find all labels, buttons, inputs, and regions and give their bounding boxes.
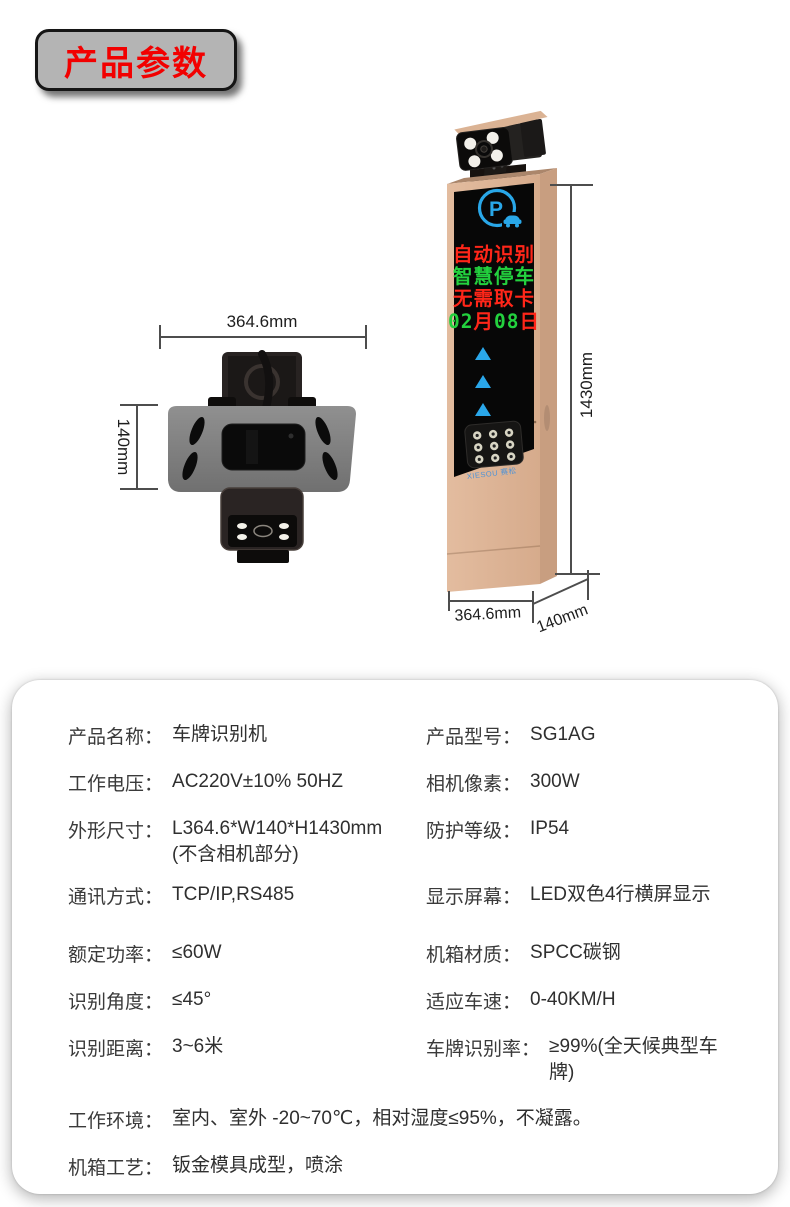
led-line-4: 02月08日 (448, 310, 540, 333)
spec-item-vehicle-speed: 适应车速： 0-40KM/H (426, 987, 742, 1014)
spec-item-rated-power: 额定功率： ≤60W (68, 940, 426, 967)
device-front-view-figure: P 自动识别 智慧停车 无需取卡 02月08日 (430, 108, 610, 638)
device-lower-housing (221, 488, 303, 563)
spec-label: 车牌识别率： (426, 1034, 540, 1061)
led-date-segment: 02 (448, 310, 473, 333)
spec-row: 产品名称： 车牌识别机 产品型号： SG1AG (68, 722, 742, 749)
spec-label: 机箱材质： (426, 940, 521, 967)
spec-label: 工作环境： (68, 1106, 163, 1133)
height-dimension: 1430mm (550, 185, 600, 600)
spec-label: 额定功率： (68, 940, 163, 967)
spec-item-dimensions: 外形尺寸： L364.6*W140*H1430mm(不含相机部分) (68, 816, 426, 868)
spec-value: AC220V±10% 50HZ (172, 769, 343, 795)
spec-item-voltage: 工作电压： AC220V±10% 50HZ (68, 769, 426, 796)
indicator-light (279, 523, 289, 529)
spec-value: SPCC碳钢 (530, 940, 621, 966)
spec-item-display-screen: 显示屏幕： LED双色4行横屏显示 (426, 882, 742, 909)
depth-dimension: 140mm (533, 579, 590, 636)
spec-value: ≤60W (172, 940, 222, 966)
spec-label: 工作电压： (68, 769, 163, 796)
spec-value-line2: (不含相机部分) (172, 842, 382, 868)
spec-card: 产品名称： 车牌识别机 产品型号： SG1AG 工作电压： AC220V±10%… (12, 680, 778, 1194)
spec-item-communication: 通讯方式： TCP/IP,RS485 (68, 882, 426, 909)
spec-item-recognition-rate: 车牌识别率： ≥99%(全天候典型车牌) (426, 1034, 742, 1086)
spec-label: 机箱工艺： (68, 1153, 163, 1180)
device-visor (168, 406, 356, 492)
section-title: 产品参数 (64, 36, 208, 85)
product-parameters-page: 产品参数 364.6mm 140mm (0, 0, 790, 1207)
led-line-2: 智慧停车 (453, 265, 535, 288)
indicator-light (237, 523, 247, 529)
spec-row: 识别角度： ≤45° 适应车速： 0-40KM/H (68, 987, 742, 1014)
top-height-dimension-label: 140mm (114, 419, 133, 476)
spec-row: 通讯方式： TCP/IP,RS485 显示屏幕： LED双色4行横屏显示 (68, 882, 742, 909)
section-title-badge: 产品参数 (35, 29, 237, 91)
spec-label: 外形尺寸： (68, 816, 163, 843)
spec-value: LED双色4行横屏显示 (530, 882, 711, 908)
spec-item-cabinet-process: 机箱工艺： 钣金模具成型，喷涂 (68, 1153, 742, 1180)
spec-label: 防护等级： (426, 816, 521, 843)
indicator-light (279, 534, 289, 540)
spec-item-working-environment: 工作环境： 室内、室外 -20~70℃，相对湿度≤95%，不凝露。 (68, 1106, 742, 1133)
spec-label: 适应车速： (426, 987, 521, 1014)
spec-item-protection-rating: 防护等级： IP54 (426, 816, 742, 868)
spec-row: 机箱工艺： 钣金模具成型，喷涂 (68, 1153, 742, 1180)
led-date-segment: 月 (472, 310, 494, 333)
camera-window (222, 424, 305, 470)
spec-row: 工作环境： 室内、室外 -20~70℃，相对湿度≤95%，不凝露。 (68, 1106, 742, 1133)
spec-label: 相机像素： (426, 769, 521, 796)
spec-value: 300W (530, 769, 580, 795)
device-upper-housing (208, 352, 316, 412)
spec-item-cabinet-material: 机箱材质： SPCC碳钢 (426, 940, 742, 967)
side-speaker (544, 405, 550, 431)
led-date-segment: 08 (494, 310, 519, 333)
keypad (464, 421, 524, 469)
led-line-1: 自动识别 (453, 243, 535, 266)
spec-row: 外形尺寸： L364.6*W140*H1430mm(不含相机部分) 防护等级： … (68, 816, 742, 868)
spec-value: L364.6*W140*H1430mm(不含相机部分) (172, 816, 382, 868)
device-top-view-figure: 364.6mm 140mm (104, 300, 389, 585)
spec-row: 识别距离： 3~6米 车牌识别率： ≥99%(全天候典型车牌) (68, 1034, 742, 1086)
spec-value-line1: L364.6*W140*H1430mm (172, 818, 382, 839)
front-height-dimension-label: 1430mm (577, 352, 596, 418)
spec-label: 通讯方式： (68, 882, 163, 909)
spec-value: TCP/IP,RS485 (172, 882, 294, 908)
spec-value: 0-40KM/H (530, 987, 616, 1013)
front-width-dimension-label: 364.6mm (454, 604, 522, 624)
spec-value: IP54 (530, 816, 569, 842)
spec-row: 工作电压： AC220V±10% 50HZ 相机像素： 300W (68, 769, 742, 796)
spec-label: 识别角度： (68, 987, 163, 1014)
spec-value: ≥99%(全天候典型车牌) (549, 1034, 742, 1086)
spec-value: ≤45° (172, 987, 211, 1013)
spec-value: SG1AG (530, 722, 595, 748)
spec-label: 识别距离： (68, 1034, 163, 1061)
spec-item-recognition-distance: 识别距离： 3~6米 (68, 1034, 426, 1086)
spec-item-model: 产品型号： SG1AG (426, 722, 742, 749)
spec-value: 室内、室外 -20~70℃，相对湿度≤95%，不凝露。 (172, 1106, 592, 1132)
spec-value: 3~6米 (172, 1034, 223, 1060)
indicator-light (237, 534, 247, 540)
spec-item-camera-pixels: 相机像素： 300W (426, 769, 742, 796)
led-display: 自动识别 智慧停车 无需取卡 02月08日 (448, 243, 540, 333)
top-width-dimension-label: 364.6mm (227, 312, 298, 331)
spec-label: 产品型号： (426, 722, 521, 749)
spec-value: 钣金模具成型，喷涂 (172, 1153, 343, 1179)
spec-item-product-name: 产品名称： 车牌识别机 (68, 722, 426, 749)
spec-label: 产品名称： (68, 722, 163, 749)
led-date-segment: 日 (519, 310, 540, 333)
width-dimension: 364.6mm (449, 591, 533, 625)
spec-row: 额定功率： ≤60W 机箱材质： SPCC碳钢 (68, 940, 742, 967)
spec-value: 车牌识别机 (172, 722, 267, 748)
p-logo-letter: P (489, 198, 503, 221)
spec-item-recognition-angle: 识别角度： ≤45° (68, 987, 426, 1014)
camera-icon (453, 110, 552, 171)
spec-label: 显示屏幕： (426, 882, 521, 909)
led-line-3: 无需取卡 (453, 287, 535, 310)
front-depth-dimension-label: 140mm (534, 601, 590, 636)
